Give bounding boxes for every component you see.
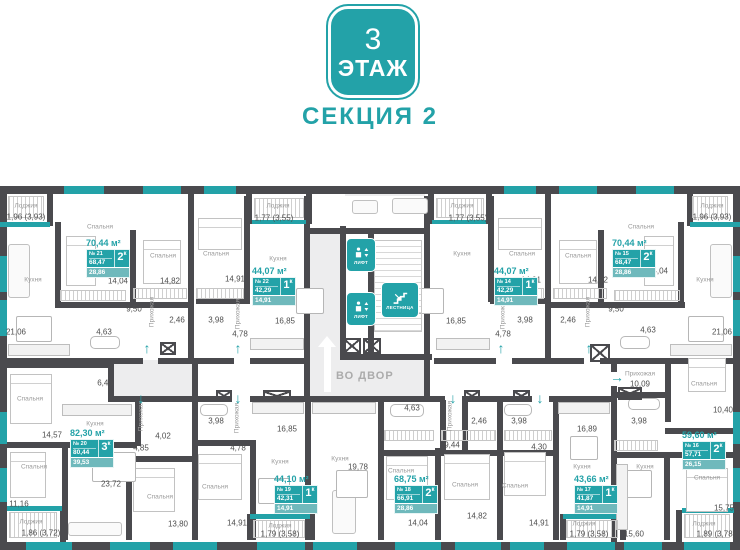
ventilation-shaft — [618, 387, 642, 400]
apartment-number: № 17 — [577, 487, 600, 493]
window — [733, 300, 740, 336]
kitchen-counter — [250, 338, 304, 350]
room-label: Лоджия — [266, 203, 289, 210]
apartment-total-area: 80,44 — [73, 448, 96, 456]
stairs-icon — [392, 291, 408, 304]
dimension-label: 4,02 — [155, 432, 171, 441]
room-label: Спальня — [150, 253, 176, 260]
room-label: Прихожая — [149, 297, 156, 327]
room-label: Прихожая — [585, 297, 592, 327]
bathtub — [200, 404, 228, 416]
dimension-label: 1,96 (3,93) — [693, 213, 732, 222]
room-label: Кухня — [269, 256, 286, 263]
window — [313, 542, 357, 550]
dimension-label: 2,46 — [471, 417, 487, 426]
wall — [664, 458, 670, 540]
apartment-number: № 18 — [397, 487, 420, 493]
apartment-living-area: 28,86 — [87, 267, 129, 277]
dimension-label: 4,63 — [96, 328, 112, 337]
window — [110, 542, 150, 550]
room-label: Спальня — [203, 251, 229, 258]
wall — [192, 362, 198, 540]
wall — [462, 400, 468, 452]
section-label: СЕКЦИЯ 2 — [0, 103, 740, 131]
bed — [133, 468, 175, 512]
kitchen-counter — [8, 344, 70, 356]
room-label: Спальня — [502, 483, 528, 490]
room-label: Кухня — [573, 464, 590, 471]
wall — [512, 358, 584, 364]
lift-label: ЛИФТ — [354, 314, 368, 319]
window — [636, 186, 674, 194]
kitchen-counter — [558, 402, 610, 414]
floor-logo: 3 ЭТАЖ — [328, 6, 418, 98]
room-label: Кухня — [636, 464, 653, 471]
window — [690, 222, 740, 227]
wardrobe-or-railing — [504, 430, 552, 441]
sofa — [68, 522, 122, 536]
window — [510, 542, 544, 550]
apartment-number: № 16 — [685, 443, 708, 449]
wall — [553, 400, 559, 540]
room-label: Спальня — [202, 484, 228, 491]
room-label: Прихожая — [234, 403, 241, 433]
apartment-total-area: 42,31 — [277, 494, 300, 502]
floor-number: 3 — [365, 24, 382, 56]
apartment-area-title: 43,66 м² — [574, 474, 620, 484]
wall — [378, 400, 384, 540]
table — [336, 470, 368, 498]
room-label: Спальня — [565, 253, 591, 260]
apartment-info-box: № 1866,912к28,86 — [394, 485, 438, 514]
wardrobe-or-railing — [60, 290, 126, 301]
apartment-badge[interactable]: 70,44 м²№ 1568,472к28,86 — [612, 238, 658, 278]
dimension-label: 1,77 (3,55) — [449, 214, 488, 223]
apartment-number: № 15 — [615, 251, 638, 257]
dimension-label: 16,85 — [275, 317, 295, 326]
apartment-living-area: 14,91 — [495, 295, 537, 305]
window — [733, 256, 740, 292]
dimension-label: 1,79 (3,58) — [570, 530, 609, 539]
dimension-label: 2,46 — [560, 316, 576, 325]
dimension-label: 4,30 — [531, 443, 547, 452]
window — [257, 542, 305, 550]
window — [0, 412, 7, 444]
outdoor-area — [113, 360, 192, 396]
dimension-label: 14,82 — [467, 512, 487, 521]
apartment-number: № 22 — [255, 279, 278, 285]
room-label: Спальня — [452, 482, 478, 489]
room-label: Спальня — [694, 475, 720, 482]
apartment-rooms-count: 3к — [99, 440, 113, 457]
dimension-label: 21,06 — [6, 328, 26, 337]
bed — [198, 218, 242, 250]
window — [0, 222, 50, 227]
entrance-arrow-icon: ↓ — [537, 391, 544, 405]
entrance-arrow-icon: ↑ — [586, 341, 593, 355]
window — [0, 468, 7, 502]
wall — [665, 362, 671, 422]
window — [624, 542, 662, 550]
dimension-label: 3,98 — [517, 316, 533, 325]
dimension-label: 1,86 (3,72) — [22, 529, 61, 538]
entrance-arrow-icon: ↑ — [144, 341, 151, 355]
dimension-label: 1,79 (3,58) — [261, 530, 300, 539]
apartment-area-title: 70,44 м² — [86, 238, 132, 248]
room-label: Лоджия — [268, 523, 291, 530]
room-label: Спальня — [628, 224, 654, 231]
entrance-arrow-icon: ↓ — [138, 391, 145, 405]
apartment-total-area: 57,71 — [685, 450, 708, 458]
apartment-total-area: 68,47 — [615, 258, 638, 266]
apartment-living-area: 28,86 — [395, 503, 437, 513]
dimension-label: 1,77 (3,55) — [255, 214, 294, 223]
apartment-area-title: 44,07 м² — [252, 266, 298, 276]
apartment-total-area: 66,91 — [397, 494, 420, 502]
window — [250, 514, 310, 519]
window — [204, 186, 236, 194]
wall — [250, 358, 306, 364]
apartment-badge[interactable]: 44,07 м²№ 2242,291к14,91 — [252, 266, 298, 306]
room-label: Прихожая — [625, 371, 655, 378]
window — [504, 186, 536, 194]
dimension-label: 9,44 — [444, 441, 460, 450]
dimension-label: 10,09 — [630, 380, 650, 389]
apartment-living-area: 28,86 — [613, 267, 655, 277]
sofa — [352, 200, 378, 214]
apartment-rooms-count: 1к — [523, 278, 537, 295]
apartment-area-title: 82,30 м² — [70, 428, 116, 438]
apartment-total-area: 41,87 — [577, 494, 600, 502]
dimension-label: 15,75 — [714, 504, 734, 513]
apartment-badge[interactable]: 43,66 м²№ 1741,871к14,91 — [574, 474, 620, 514]
dimension-label: 4,78 — [230, 444, 246, 453]
dimension-label: 10,40 — [713, 406, 733, 415]
courtyard-exit-label: ВО ДВОР — [336, 370, 416, 384]
apartment-info-box: № 2242,291к14,91 — [252, 277, 296, 306]
kitchen-counter — [252, 402, 304, 414]
dimension-label: 6,46 — [97, 379, 113, 388]
ventilation-shaft — [464, 390, 480, 402]
apartment-info-box: № 2080,443к39,53 — [70, 439, 114, 468]
apartment-living-area: 26,15 — [683, 459, 725, 469]
sofa — [710, 244, 732, 298]
kitchen-counter — [312, 402, 376, 414]
dimension-label: 14,91 — [529, 519, 549, 528]
window — [173, 542, 217, 550]
apartment-total-area: 68,47 — [89, 258, 112, 266]
bathtub — [90, 336, 120, 349]
ventilation-shaft — [513, 390, 530, 402]
wall — [188, 192, 194, 362]
dimension-label: 14,04 — [408, 519, 428, 528]
window — [563, 514, 621, 519]
dimension-label: 3,98 — [631, 417, 647, 426]
ventilation-shaft — [216, 390, 232, 402]
wall — [434, 358, 496, 364]
apartment-living-area: 14,91 — [575, 503, 617, 513]
dimension-label: 9,50 — [608, 305, 624, 314]
elevator-icon — [354, 246, 369, 259]
wardrobe-or-railing — [553, 288, 607, 299]
dimension-label: 14,82 — [588, 276, 608, 285]
sofa — [8, 244, 30, 298]
bed — [444, 454, 490, 500]
room-label: Лоджия — [572, 521, 595, 528]
dimension-label: 4,78 — [232, 330, 248, 339]
window — [733, 412, 740, 444]
apartment-badge[interactable]: 70,44 м²№ 2168,472к28,86 — [86, 238, 132, 278]
room-label: Спальня — [509, 251, 535, 258]
stairs-label: ЛЕСТНИЦА — [386, 305, 413, 310]
room-label: Лоджия — [14, 203, 37, 210]
apartment-number: № 21 — [89, 251, 112, 257]
bed — [498, 218, 542, 250]
floor-word: ЭТАЖ — [338, 56, 408, 80]
dimension-label: 9,50 — [126, 305, 142, 314]
ventilation-shaft — [590, 344, 610, 362]
room-label: Лоджия — [700, 203, 723, 210]
wardrobe-or-railing — [441, 430, 496, 441]
apartment-rooms-count: 2к — [115, 250, 129, 267]
room-label: Кухня — [24, 277, 41, 284]
exit-arrow-icon — [324, 346, 331, 392]
dimension-label: 21,06 — [712, 328, 732, 337]
dimension-label: 15,60 — [624, 530, 644, 539]
dimension-label: 19,78 — [348, 463, 368, 472]
apartment-number: № 20 — [73, 441, 96, 447]
dimension-label: 4,63 — [640, 326, 656, 335]
window — [684, 542, 730, 550]
dimension-label: 14,57 — [42, 431, 62, 440]
window — [567, 542, 615, 550]
table — [570, 436, 598, 460]
kitchen-counter — [670, 344, 732, 356]
window — [0, 256, 7, 292]
apartment-rooms-count: 1к — [281, 278, 295, 295]
room-label: Лоджия — [19, 519, 42, 526]
apartment-area-title: 70,44 м² — [612, 238, 658, 248]
bed — [10, 452, 46, 498]
apartment-living-area: 14,91 — [253, 295, 295, 305]
bathtub — [504, 404, 532, 416]
entrance-arrow-icon: ↓ — [235, 391, 242, 405]
window — [455, 542, 501, 550]
apartment-area-title: 44,10 м² — [274, 474, 320, 484]
room-label: Кухня — [331, 456, 348, 463]
apartment-living-area: 14,91 — [275, 503, 317, 513]
lift-label: ЛИФТ — [354, 260, 368, 265]
wall — [108, 396, 198, 402]
room-label: Спальня — [691, 381, 717, 388]
window — [733, 468, 740, 502]
dimension-label: 3,98 — [511, 417, 527, 426]
dimension-label: 14,91 — [227, 519, 247, 528]
elevator-icon — [354, 300, 369, 313]
window — [26, 542, 72, 550]
apartment-number: № 19 — [277, 487, 300, 493]
apartment-badge[interactable]: 44,07 м²№ 1442,291к14,91 — [494, 266, 540, 306]
apartment-badge[interactable]: 59,60 м²№ 1657,712к26,15 — [682, 430, 728, 470]
wall — [7, 362, 109, 368]
kitchen-counter — [436, 338, 490, 350]
dimension-label: 23,72 — [101, 480, 121, 489]
wall — [304, 228, 430, 234]
stairs-badge: ЛЕСТНИЦА — [381, 282, 419, 318]
room-label: Спальня — [147, 494, 173, 501]
entrance-arrow-icon: ↑ — [235, 341, 242, 355]
dimension-label: 16,85 — [277, 425, 297, 434]
table — [296, 288, 324, 314]
apartment-rooms-count: 1к — [303, 486, 317, 503]
room-label: Спальня — [87, 224, 113, 231]
elevator-badge: ЛИФТ — [346, 238, 376, 272]
ventilation-shaft — [263, 390, 291, 402]
wall — [545, 192, 551, 362]
apartment-info-box: № 1657,712к26,15 — [682, 441, 726, 470]
floor-plan-page: 3 ЭТАЖ СЕКЦИЯ 2 ЛоджияСпальняСпальняКухн… — [0, 0, 740, 550]
apartment-info-box: № 2168,472к28,86 — [86, 249, 130, 278]
room-label: Кухня — [271, 459, 288, 466]
room-label: Кухня — [696, 277, 713, 284]
apartment-badge[interactable]: 82,30 м²№ 2080,443к39,53 — [70, 428, 116, 468]
dimension-label: 4,85 — [133, 444, 149, 453]
dimension-label: 13,80 — [168, 520, 188, 529]
ventilation-shaft — [343, 338, 361, 354]
dimension-label: 2,46 — [169, 316, 185, 325]
ventilation-shaft — [160, 342, 176, 355]
wall — [340, 354, 432, 360]
dimension-label: 1,89 (3,78) — [697, 530, 736, 539]
exit-arrow-head-icon — [318, 336, 336, 347]
wall — [244, 196, 250, 302]
apartment-badge[interactable]: 68,75 м²№ 1866,912к28,86 — [394, 474, 440, 514]
dimension-label: 16,85 — [446, 317, 466, 326]
apartment-rooms-count: 2к — [423, 486, 437, 503]
wardrobe-or-railing — [133, 288, 187, 299]
apartment-badge[interactable]: 44,10 м²№ 1942,311к14,91 — [274, 474, 320, 514]
entrance-arrow-icon: ↓ — [450, 391, 457, 405]
wall — [55, 302, 190, 308]
wardrobe-or-railing — [614, 440, 658, 451]
apartment-info-box: № 1442,291к14,91 — [494, 277, 538, 306]
dimension-label: 1,96 (3,93) — [7, 213, 46, 222]
entrance-arrow-icon: → — [610, 370, 624, 384]
sofa — [392, 198, 428, 214]
bed — [198, 454, 242, 500]
dimension-label: 11,16 — [9, 500, 28, 509]
wall — [126, 456, 194, 462]
window — [143, 186, 181, 194]
apartment-area-title: 68,75 м² — [394, 474, 440, 484]
ventilation-shaft — [363, 338, 381, 354]
window — [395, 542, 441, 550]
dimension-label: 3,98 — [208, 316, 224, 325]
apartment-info-box: № 1568,472к28,86 — [612, 249, 656, 278]
entrance-arrow-icon: ↑ — [498, 341, 505, 355]
wall — [60, 508, 66, 542]
apartment-living-area: 39,53 — [71, 457, 113, 467]
room-label: Кухня — [453, 251, 470, 258]
bathtub — [620, 336, 650, 349]
wall — [497, 400, 503, 540]
apartment-area-title: 44,07 м² — [494, 266, 540, 276]
apartment-rooms-count: 1к — [603, 486, 617, 503]
room-label: Спальня — [21, 464, 47, 471]
dimension-label: 14,82 — [160, 277, 180, 286]
room-label: Лоджия — [450, 203, 473, 210]
dimension-label: 3,98 — [208, 417, 224, 426]
apartment-total-area: 42,29 — [497, 286, 520, 294]
apartment-info-box: № 1942,311к14,91 — [274, 485, 318, 514]
room-label: Кухня — [86, 421, 103, 428]
dimension-label: 16,89 — [577, 425, 597, 434]
kitchen-counter — [62, 404, 132, 416]
room-label: Лоджия — [692, 521, 715, 528]
window — [559, 186, 597, 194]
apartment-total-area: 42,29 — [255, 286, 278, 294]
wardrobe-or-railing — [196, 288, 244, 299]
wall — [0, 186, 740, 194]
dimension-label: 14,91 — [225, 275, 245, 284]
dimension-label: 4,78 — [495, 330, 511, 339]
apartment-area-title: 59,60 м² — [682, 430, 728, 440]
elevator-badge: ЛИФТ — [346, 292, 376, 326]
wardrobe-or-railing — [614, 290, 680, 301]
room-label: Прихожая — [235, 299, 242, 329]
dimension-label: 4,63 — [404, 404, 420, 413]
wardrobe-or-railing — [384, 430, 434, 441]
apartment-rooms-count: 2к — [711, 442, 725, 459]
window — [64, 186, 104, 194]
apartment-number: № 14 — [497, 279, 520, 285]
apartment-info-box: № 1741,871к14,91 — [574, 485, 618, 514]
apartment-rooms-count: 2к — [641, 250, 655, 267]
room-label: Спальня — [17, 396, 43, 403]
wall — [676, 510, 682, 542]
